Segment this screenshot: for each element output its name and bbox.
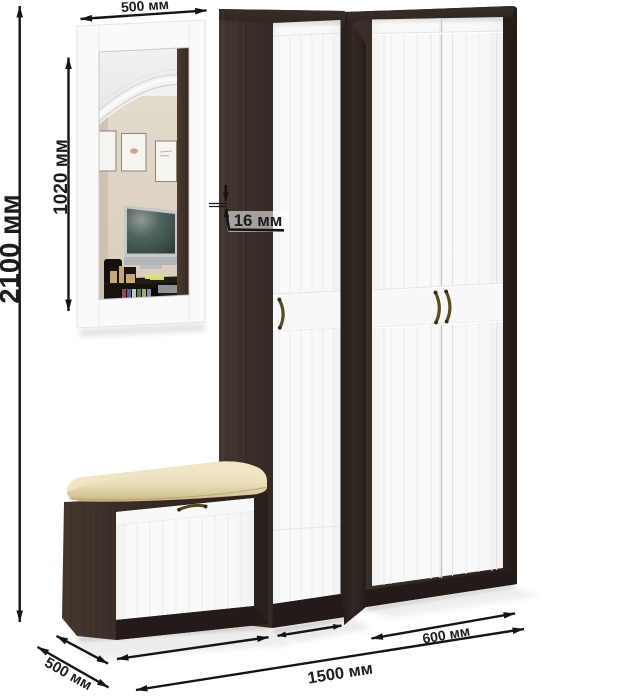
svg-text:600 мм: 600 мм [421, 623, 471, 647]
svg-text:16 мм: 16 мм [234, 211, 283, 230]
svg-text:1500 мм: 1500 мм [306, 660, 374, 688]
svg-text:1020 мм: 1020 мм [51, 139, 72, 215]
svg-text:500 мм: 500 мм [42, 654, 95, 694]
svg-text:2100 мм: 2100 мм [0, 194, 25, 304]
